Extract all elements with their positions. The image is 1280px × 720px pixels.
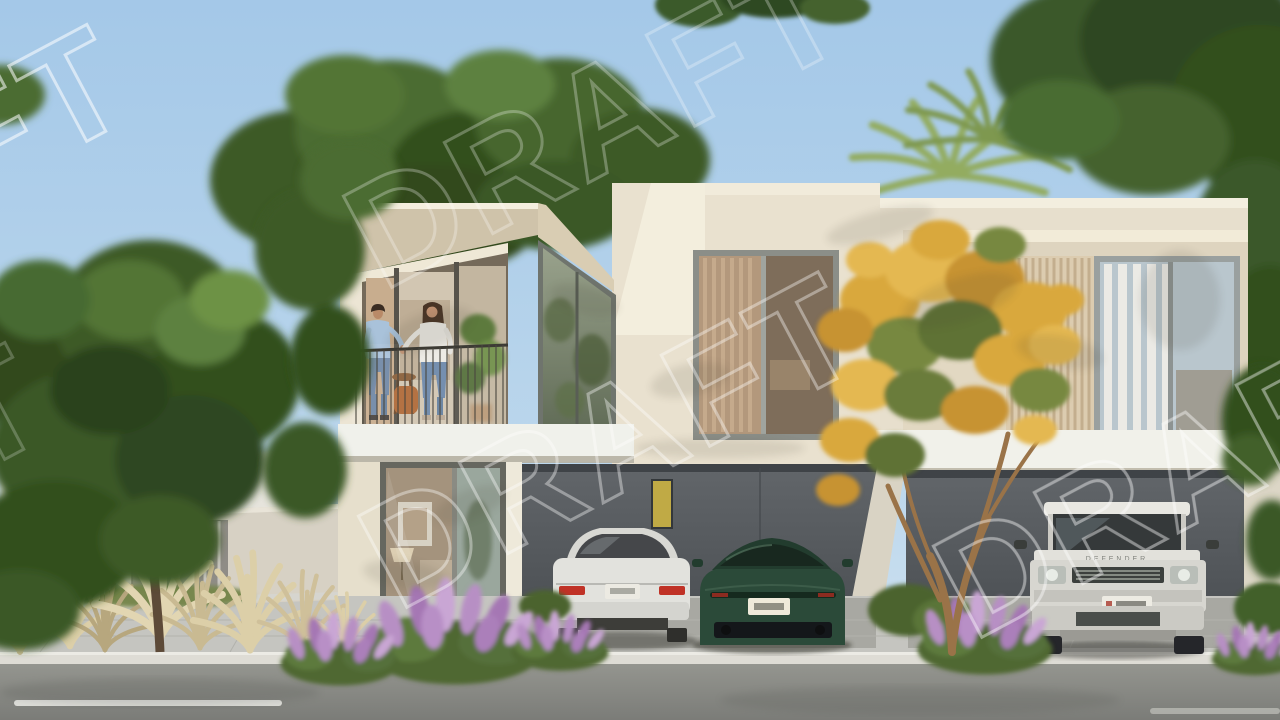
taillight <box>659 586 685 595</box>
taillight <box>559 586 585 595</box>
taillight <box>712 593 728 597</box>
road <box>0 664 1280 720</box>
render-canvas: DEFENDER <box>0 0 1280 720</box>
side-mirror <box>842 559 853 567</box>
taillight <box>818 593 834 597</box>
scene: DEFENDER <box>0 0 1280 720</box>
lane-marking <box>1150 708 1280 714</box>
side-mirror <box>692 559 703 567</box>
